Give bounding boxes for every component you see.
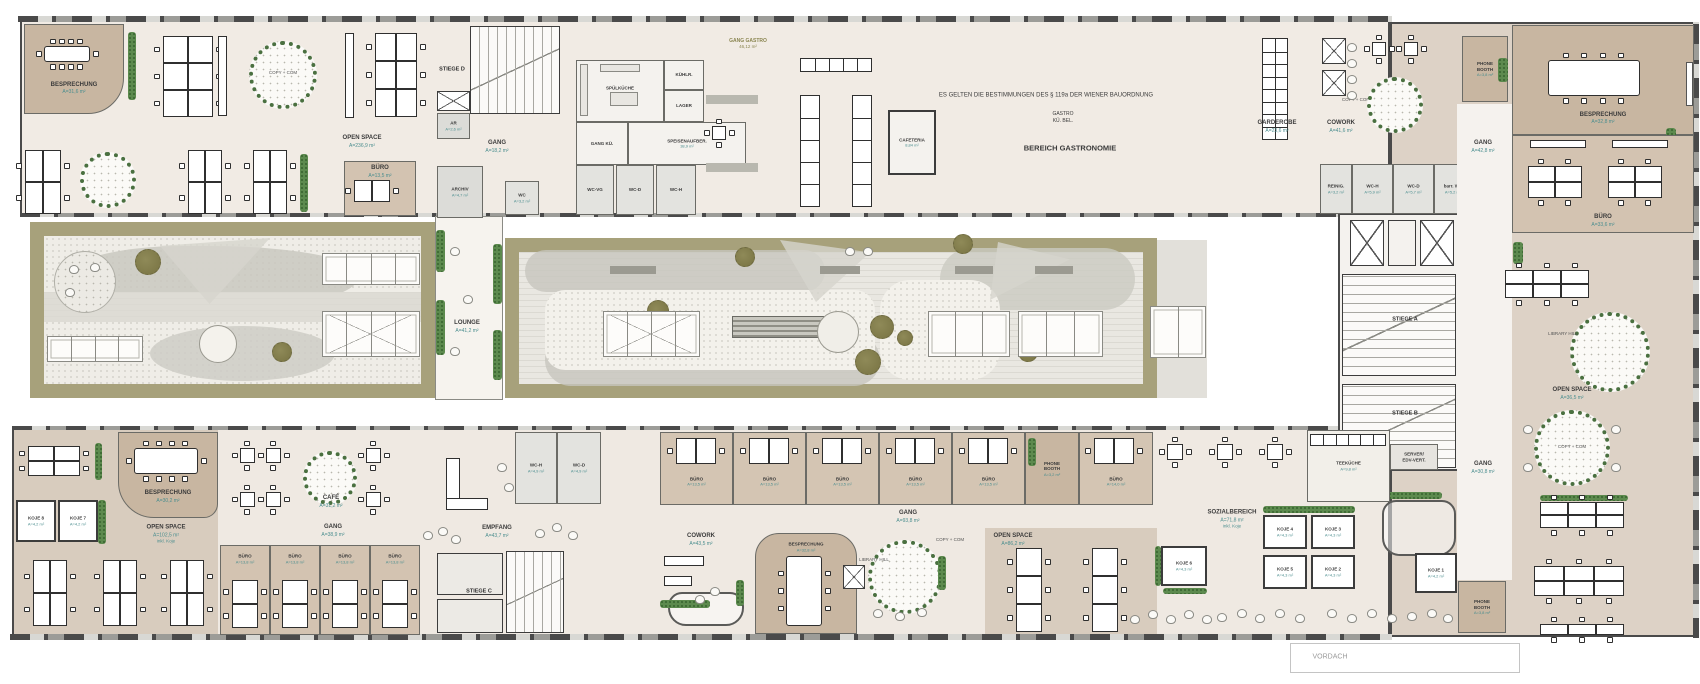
text-line: EMPFANG — [482, 525, 512, 533]
chair-icon — [1083, 615, 1089, 621]
desk — [103, 593, 120, 626]
chair-icon — [1121, 559, 1127, 565]
chair-icon — [1286, 449, 1292, 455]
chair-icon — [1600, 53, 1606, 59]
chair-icon — [24, 607, 30, 613]
kitchen-island — [610, 92, 638, 106]
grid-cell — [1263, 64, 1275, 77]
desk — [749, 438, 769, 464]
desk — [1608, 182, 1635, 198]
lounge-chair-icon — [438, 527, 448, 536]
desk — [1555, 166, 1582, 182]
skylight-cell — [1019, 312, 1046, 356]
elevator — [1350, 220, 1384, 266]
desk — [396, 61, 417, 89]
cowork-table — [1372, 42, 1386, 56]
chair-icon — [244, 195, 250, 201]
stair-d — [470, 26, 560, 114]
room-koje — [1263, 515, 1307, 549]
planter — [1263, 506, 1355, 513]
chair-icon — [345, 188, 351, 194]
skylight-cell — [627, 312, 651, 356]
chair-icon — [865, 448, 871, 454]
copy-closet — [1322, 70, 1346, 96]
desk — [232, 604, 258, 628]
chair-icon — [1259, 449, 1265, 455]
desk-group — [163, 36, 213, 117]
desk-group — [253, 150, 287, 214]
servery-counter — [800, 58, 872, 72]
chair-icon — [16, 195, 22, 201]
chair-icon — [370, 509, 376, 515]
chair-icon — [1364, 46, 1370, 52]
chair-icon — [1083, 587, 1089, 593]
chair-icon — [290, 163, 296, 169]
desk — [1596, 624, 1624, 635]
grid-cell — [1275, 114, 1287, 127]
grid-cell — [1360, 435, 1372, 445]
grid-cell — [1348, 435, 1360, 445]
desk-group — [1540, 502, 1624, 528]
chair-icon — [716, 119, 722, 125]
chair-icon — [411, 613, 417, 619]
bench — [610, 266, 656, 274]
desk-group — [25, 150, 61, 214]
desk — [187, 593, 204, 626]
chair-icon — [70, 607, 76, 613]
text-line: GASTRO — [1052, 111, 1073, 117]
chair-icon — [64, 163, 70, 169]
grid-cell — [1263, 89, 1275, 102]
grid-cell — [1275, 39, 1287, 52]
desk — [1534, 566, 1564, 581]
chair-icon — [19, 451, 25, 457]
text-line: inkl. Koje — [1207, 523, 1256, 529]
bench — [955, 266, 993, 274]
chair-icon — [270, 465, 276, 471]
floor-plan: LOUNGEA=41,2 m²BESPRECHUNGA=31,6 m²COPY … — [0, 0, 1700, 684]
chair-icon — [1045, 559, 1051, 565]
grid-cell — [1263, 114, 1275, 127]
desk — [270, 150, 287, 182]
lounge-chair-icon — [535, 529, 545, 538]
text-line: ES GELTEN DIE BESTIMMUNGEN DES § 119a DE… — [939, 92, 1153, 100]
desk — [43, 182, 61, 214]
social-table — [1167, 444, 1183, 460]
copy-hub-circle — [249, 41, 317, 109]
kitchen-counter — [580, 64, 588, 116]
room-koje — [58, 500, 98, 542]
desk — [968, 438, 988, 464]
gang-label: GANGA=93,8 m² — [896, 510, 919, 524]
chair-icon — [261, 589, 267, 595]
lounge-chair-icon — [1295, 614, 1305, 623]
grid-cell — [1275, 127, 1287, 140]
chair-icon — [1551, 637, 1557, 643]
chair-icon — [825, 588, 831, 594]
chair-icon — [70, 574, 76, 580]
cafe-table — [366, 492, 381, 507]
grid-cell — [1275, 77, 1287, 90]
library-hill-circle — [868, 540, 942, 614]
chair-icon — [373, 613, 379, 619]
lounge-chair-icon — [1347, 75, 1357, 84]
chair-icon — [1607, 617, 1613, 623]
skylight-cell — [955, 312, 982, 356]
room-koje — [1263, 555, 1307, 589]
desk — [1540, 502, 1568, 515]
corridor-right-wing — [1457, 104, 1512, 580]
lounge-chair-icon — [1130, 615, 1140, 624]
lounge-chair-icon — [451, 535, 461, 544]
room-koje — [1415, 553, 1457, 593]
copy-closet — [843, 565, 865, 589]
desk — [1533, 284, 1561, 298]
plant-circle — [80, 152, 136, 208]
chair-icon — [1563, 98, 1569, 104]
desk-group — [282, 580, 308, 628]
lounge-chair-icon — [873, 609, 883, 618]
sideboard — [345, 33, 354, 118]
grid-cell — [1323, 435, 1335, 445]
planter — [1028, 438, 1036, 466]
room-wc-d — [1393, 164, 1434, 214]
stair-d-label: STIEGE D — [439, 67, 465, 74]
desk — [382, 580, 408, 604]
lounge-chair-icon — [1443, 614, 1453, 623]
chair-icon — [223, 613, 229, 619]
sideboard — [218, 36, 227, 116]
content-layer: LOUNGEA=41,2 m²BESPRECHUNGA=31,6 m²COPY … — [0, 0, 1700, 684]
grid-cell — [1263, 52, 1275, 65]
lounge-chair-icon — [1427, 609, 1437, 618]
chair-icon — [1376, 35, 1382, 41]
grid-cell — [1373, 435, 1385, 445]
cafe-table — [266, 492, 281, 507]
service-room — [437, 553, 503, 595]
lounge-chair-icon — [1255, 614, 1265, 623]
lounge-chair-icon — [69, 265, 79, 274]
desk — [1561, 284, 1589, 298]
room-koje — [1161, 546, 1207, 586]
chair-icon — [1222, 462, 1228, 468]
desk — [1596, 515, 1624, 528]
grid-cell — [1275, 52, 1287, 65]
lounge-chair-icon — [504, 483, 514, 492]
chair-icon — [366, 100, 372, 106]
plant-circle — [1367, 77, 1423, 133]
room-cafeteria — [888, 110, 936, 175]
text-line: A=41,6 m² — [1327, 128, 1355, 134]
chair-icon — [244, 441, 250, 447]
desk-group — [1016, 548, 1042, 632]
chair-icon — [1007, 587, 1013, 593]
lounge-chair-icon — [450, 347, 460, 356]
chair-icon — [77, 39, 83, 45]
chair-icon — [358, 497, 364, 503]
chair-icon — [825, 571, 831, 577]
chair-icon — [1222, 437, 1228, 443]
desk — [1094, 438, 1114, 464]
chair-icon — [373, 589, 379, 595]
chair-icon — [1376, 58, 1382, 64]
gastro-bench — [706, 163, 758, 172]
desk-group — [1505, 270, 1589, 298]
desk — [354, 180, 372, 202]
desk — [1635, 166, 1662, 182]
desk — [1564, 581, 1594, 596]
room-wc-d — [557, 432, 601, 504]
chair-icon — [1572, 300, 1578, 306]
desk — [54, 446, 80, 461]
room-label-cowork: COWORKA=43,5 m² — [687, 533, 715, 547]
skylight-cell — [675, 312, 699, 356]
chair-icon — [1546, 559, 1552, 565]
chair-icon — [1565, 200, 1571, 206]
chair-icon — [1538, 200, 1544, 206]
desk-group — [188, 150, 222, 214]
desk — [1561, 270, 1589, 284]
chair-icon — [1544, 263, 1550, 269]
room-ar — [437, 113, 470, 139]
chair-icon — [323, 613, 329, 619]
planter — [1513, 242, 1523, 264]
grid-cell — [801, 96, 819, 118]
grid-cell — [857, 59, 871, 71]
gastro-note3: KÜ. BEL. — [1053, 118, 1074, 124]
desk — [54, 461, 80, 476]
chair-icon — [1618, 200, 1624, 206]
planter — [436, 300, 445, 355]
lounge-chair-icon — [917, 608, 927, 617]
chair-icon — [154, 47, 160, 53]
skylight-cell — [48, 337, 71, 361]
chair-icon — [1579, 637, 1585, 643]
chair-icon — [1516, 300, 1522, 306]
terrace-seating-circle — [54, 251, 116, 313]
text-line: OPEN SPACE — [1553, 387, 1592, 395]
grid-cell — [801, 184, 819, 206]
desk — [1092, 604, 1118, 632]
chair-icon — [420, 44, 426, 50]
cafe-table — [712, 126, 726, 140]
chair-icon — [1396, 46, 1402, 52]
cafe-table — [240, 448, 255, 463]
chair-icon — [225, 195, 231, 201]
lounge-sofa — [668, 592, 744, 626]
chair-icon — [1607, 530, 1613, 536]
chair-icon — [1572, 263, 1578, 269]
chair-icon — [59, 39, 65, 45]
chair-icon — [244, 163, 250, 169]
grid-cell — [1263, 102, 1275, 115]
text-line: GANG GASTRO — [729, 38, 767, 44]
grid-cell — [853, 118, 871, 140]
text-line: STIEGE D — [439, 67, 465, 74]
desk — [1528, 166, 1555, 182]
elevator — [1420, 220, 1454, 266]
room-gang-kueche — [576, 122, 628, 165]
chair-icon — [384, 453, 390, 459]
chair-icon — [1618, 159, 1624, 165]
text-line: 46,12 m² — [729, 44, 767, 50]
chair-icon — [1389, 46, 1395, 52]
chair-icon — [1563, 53, 1569, 59]
stair-c — [506, 551, 564, 633]
lounge-chair-icon — [1184, 610, 1194, 619]
chair-icon — [1083, 559, 1089, 565]
sideboard — [1530, 140, 1586, 148]
chair-icon — [1209, 449, 1215, 455]
skylight — [1018, 311, 1103, 357]
chair-icon — [154, 101, 160, 107]
cafe-table — [240, 492, 255, 507]
grid-cell — [801, 162, 819, 184]
lounge-chair-icon — [1166, 615, 1176, 624]
desk — [1635, 182, 1662, 198]
chair-icon — [778, 571, 784, 577]
chair-icon — [143, 476, 149, 482]
desk — [895, 438, 915, 464]
text-line: A=18,2 m² — [485, 148, 508, 154]
chair-icon — [270, 485, 276, 491]
text-line: COWORK — [1327, 120, 1355, 128]
lounge-chair-icon — [90, 263, 100, 272]
chair-icon — [1011, 448, 1017, 454]
cafe-circle — [303, 451, 357, 505]
lounge-chair-icon — [1347, 43, 1357, 52]
chair-icon — [182, 441, 188, 447]
room-wc — [616, 165, 654, 215]
text-line: A=38,9 m² — [321, 532, 344, 538]
chair-icon — [311, 589, 317, 595]
desk — [382, 604, 408, 628]
desk — [188, 36, 213, 63]
lounge-chair-icon — [1347, 59, 1357, 68]
desk — [33, 593, 50, 626]
chair-icon — [16, 163, 22, 169]
meeting-table — [1548, 60, 1640, 96]
gastro-note: ES GELTEN DIE BESTIMMUNGEN DES § 119a DE… — [939, 92, 1153, 100]
chair-icon — [1579, 495, 1585, 501]
grid-cell — [801, 140, 819, 162]
chair-icon — [716, 142, 722, 148]
chair-icon — [393, 188, 399, 194]
skylight-cell — [395, 312, 419, 356]
lounge-chair-icon — [695, 595, 705, 604]
chair-icon — [1581, 98, 1587, 104]
skylight — [1150, 306, 1206, 358]
chair-icon — [1045, 587, 1051, 593]
terrace-table-circle — [817, 311, 859, 353]
text-line: GANG — [896, 510, 919, 518]
planter — [1155, 546, 1161, 586]
desk — [232, 580, 258, 604]
room-speisenaufbereitung — [628, 122, 746, 165]
chair-icon — [1159, 449, 1165, 455]
chair-icon — [169, 441, 175, 447]
text-line: SOZIALBEREICH — [1207, 509, 1256, 517]
gastro-bench — [706, 95, 758, 104]
chair-icon — [1516, 263, 1522, 269]
chair-icon — [1645, 200, 1651, 206]
desk — [396, 89, 417, 117]
text-line: KÜ. BEL. — [1053, 118, 1074, 124]
desk — [120, 560, 137, 593]
planter — [300, 154, 308, 212]
desk — [120, 593, 137, 626]
planter — [938, 556, 946, 590]
chair-icon — [50, 39, 56, 45]
chair-icon — [1272, 462, 1278, 468]
desk — [396, 33, 417, 61]
chair-icon — [1172, 437, 1178, 443]
lounge-chair-icon — [845, 247, 855, 256]
chair-icon — [1236, 449, 1242, 455]
grid-cell — [801, 59, 815, 71]
chair-icon — [1600, 98, 1606, 104]
skylight-cell — [651, 312, 675, 356]
chair-icon — [94, 607, 100, 613]
copy-com-label: COPY + COM — [936, 537, 964, 543]
chair-icon — [1408, 35, 1414, 41]
lounge-sofa — [1382, 500, 1456, 556]
kitchen-counter — [600, 64, 640, 72]
chair-icon — [169, 476, 175, 482]
desk — [188, 182, 205, 214]
desk — [1534, 581, 1564, 596]
grid-cell — [853, 162, 871, 184]
room-label-cowork: COWORKA=41,6 m² — [1327, 120, 1355, 134]
cafe-table — [366, 448, 381, 463]
chair-icon — [284, 453, 290, 459]
chair-icon — [182, 476, 188, 482]
lounge-chair-icon — [1217, 613, 1227, 622]
lounge-chair-icon — [1275, 609, 1285, 618]
sideboard — [1612, 140, 1668, 148]
desk-group — [1534, 566, 1624, 596]
desk — [1596, 502, 1624, 515]
chair-icon — [19, 466, 25, 472]
lounge-chair-icon — [1387, 614, 1397, 623]
chair-icon — [143, 441, 149, 447]
chair-icon — [284, 497, 290, 503]
chair-icon — [258, 453, 264, 459]
service-room — [437, 599, 503, 633]
chair-icon — [223, 589, 229, 595]
planter — [95, 443, 102, 480]
grid-cell — [815, 59, 829, 71]
social-table — [1217, 444, 1233, 460]
skylight-cell — [395, 254, 419, 284]
text-line: OPEN SPACE — [343, 135, 382, 143]
chair-icon — [1551, 617, 1557, 623]
skylight-cell — [371, 312, 395, 356]
chair-icon — [1007, 615, 1013, 621]
chair-icon — [232, 453, 238, 459]
desk — [769, 438, 789, 464]
desk — [205, 150, 222, 182]
planter — [736, 580, 744, 606]
grid-cell — [853, 184, 871, 206]
chair-icon — [36, 51, 42, 57]
chair-icon — [361, 613, 367, 619]
chair-icon — [778, 606, 784, 612]
desk — [1564, 566, 1594, 581]
room-wc — [656, 165, 696, 215]
chair-icon — [24, 574, 30, 580]
grid-cell — [853, 140, 871, 162]
